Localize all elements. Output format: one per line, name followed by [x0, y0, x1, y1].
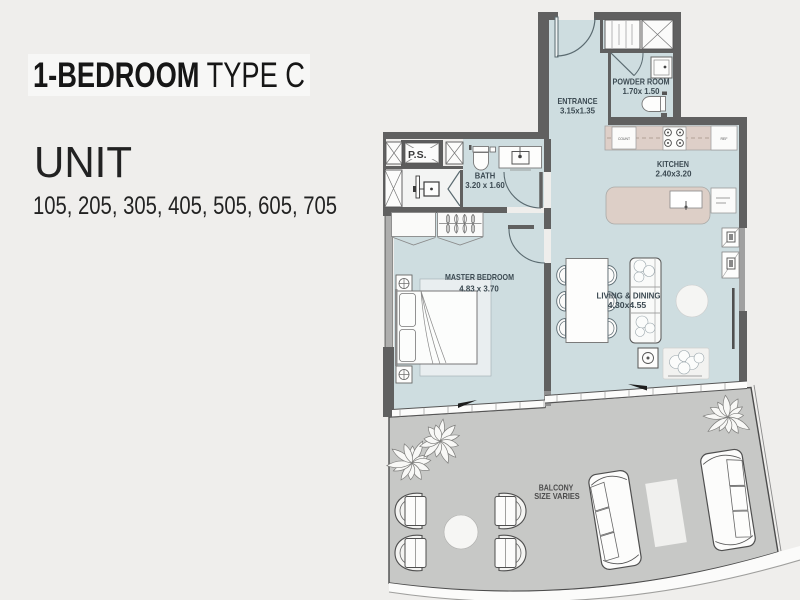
svg-text:3.15x1.35: 3.15x1.35	[560, 107, 595, 116]
svg-text:2.40x3.20: 2.40x3.20	[656, 170, 692, 179]
svg-text:4.30x4.55: 4.30x4.55	[608, 301, 647, 310]
svg-text:BATH: BATH	[475, 172, 496, 181]
svg-text:POWDER ROOM: POWDER ROOM	[613, 78, 670, 87]
svg-text:KITCHEN: KITCHEN	[657, 160, 689, 169]
svg-text:4.83 x 3.70: 4.83 x 3.70	[459, 285, 499, 294]
svg-text:1-BEDROOM TYPE C: 1-BEDROOM TYPE C	[33, 56, 305, 95]
svg-text:UNIT: UNIT	[34, 138, 132, 187]
svg-text:MASTER BEDROOM: MASTER BEDROOM	[445, 273, 514, 282]
svg-text:LIVING & DINING: LIVING & DINING	[597, 292, 661, 301]
svg-text:3.20 x 1.60: 3.20 x 1.60	[465, 181, 505, 190]
svg-text:P.S.: P.S.	[408, 149, 427, 161]
svg-text:ENTRANCE: ENTRANCE	[558, 97, 598, 106]
svg-text:105, 205, 305, 405, 505, 605,: 105, 205, 305, 405, 505, 605, 705	[33, 192, 337, 220]
svg-text:COUNT: COUNT	[618, 137, 630, 141]
svg-text:SIZE VARIES: SIZE VARIES	[534, 492, 580, 501]
svg-text:REF: REF	[721, 137, 728, 141]
svg-text:1.70x 1.50: 1.70x 1.50	[623, 87, 660, 96]
